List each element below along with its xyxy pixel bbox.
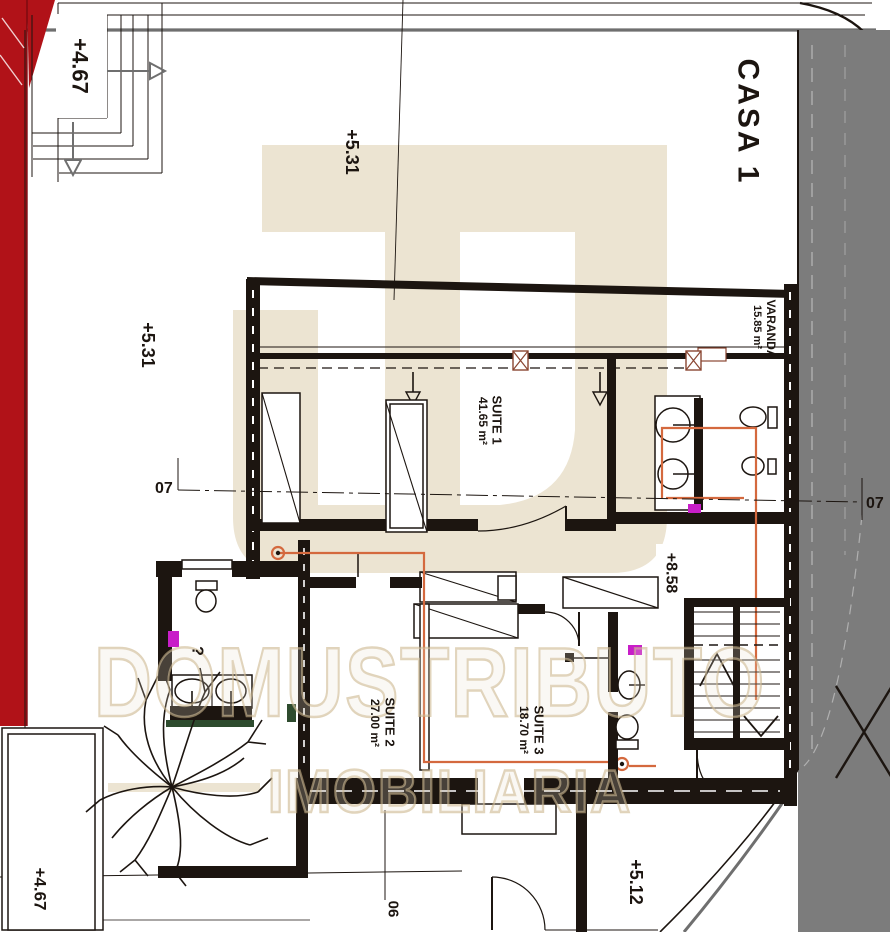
section-marker-right: 07 bbox=[866, 495, 884, 512]
shower bbox=[563, 577, 658, 608]
question-mark-note: ? bbox=[189, 646, 206, 656]
room-label-varanda: VARANDA bbox=[764, 299, 778, 358]
toilet-icon bbox=[196, 581, 217, 612]
room-label-suite1: SUITE 1 bbox=[490, 395, 505, 444]
elevation-label: +5.31 bbox=[138, 322, 158, 368]
page-title: CASA 1 bbox=[732, 59, 765, 186]
section-marker-left: 07 bbox=[155, 480, 173, 497]
terrace bbox=[2, 728, 103, 930]
room-area-varanda: 15.85 m² bbox=[751, 305, 763, 349]
floor-plan-svg: DOMUSTRIBUTO IMOBILIARIA CASA 1 +4.67 +5… bbox=[0, 0, 890, 932]
elevation-label: +5.31 bbox=[342, 129, 362, 175]
room-area-suite2: 27.00 m² bbox=[368, 699, 382, 747]
floor-plan-page: DOMUSTRIBUTO IMOBILIARIA CASA 1 +4.67 +5… bbox=[0, 0, 890, 932]
elevation-label: +8.58 bbox=[663, 553, 680, 594]
column-marker-icon bbox=[513, 351, 528, 370]
section-marker-bottom: 06 bbox=[385, 901, 402, 918]
red-boundary-strip bbox=[0, 0, 55, 726]
room-area-suite3: 18.70 m² bbox=[517, 706, 531, 754]
svg-text:IMOBILIARIA: IMOBILIARIA bbox=[268, 758, 632, 825]
room-area-suite1: 41.65 m² bbox=[476, 397, 490, 445]
svg-text:DOMUSTRIBUTO: DOMUSTRIBUTO bbox=[94, 627, 766, 737]
toilet-icon bbox=[740, 407, 777, 428]
bidet-icon bbox=[742, 457, 776, 475]
column-marker-icon bbox=[686, 351, 701, 370]
room-label-suite3: SUITE 3 bbox=[532, 705, 547, 754]
elevation-label: +5.12 bbox=[626, 859, 646, 905]
elevation-label: +4.67 bbox=[31, 867, 50, 910]
elevation-label: +4.67 bbox=[68, 38, 93, 94]
arrow-right-icon bbox=[150, 63, 165, 79]
room-label-suite2: SUITE 2 bbox=[383, 697, 398, 746]
